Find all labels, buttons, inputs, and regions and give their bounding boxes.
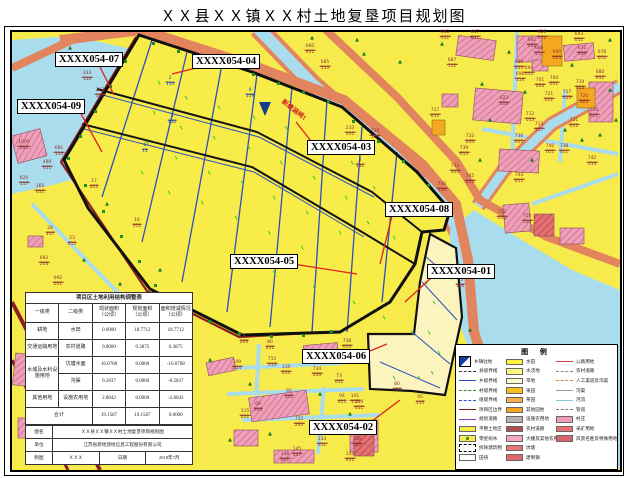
legend-label: 水浇地 [526, 368, 540, 374]
tree-icon: ▲ [158, 267, 162, 273]
sig-value: 2018年7月 [146, 452, 193, 465]
legend-symbol-sw-icon [459, 426, 476, 433]
legend-symbol-swd-icon [459, 435, 476, 442]
legend-label: 乡级界线 [479, 378, 497, 384]
vegetation-mark [212, 136, 215, 140]
vegetation-mark [234, 216, 237, 220]
sig-value: ＸＸ县ＸＸ镇ＸＸ村土地复垦项目规划图 [53, 426, 193, 439]
parcel-code: 115011 [240, 410, 251, 420]
vegetation-mark [184, 96, 187, 100]
legend-symbol-sw-icon [556, 416, 573, 423]
legend-item: 乡级界线 [459, 376, 506, 386]
tree-icon: ▲ [228, 437, 232, 443]
plot-label: XXXX054-03 [307, 140, 375, 155]
parcel-code: 678011 [597, 51, 608, 61]
legend-symbol-sw-icon [506, 387, 523, 394]
plot-label: XXXX054-01 [427, 264, 495, 279]
boundary-marker [402, 160, 405, 163]
parcel-code: 687112 [447, 59, 458, 69]
table-cell: 0.0000 [126, 391, 159, 408]
parcel-code: 690023 [552, 51, 563, 61]
parcel-code: 736011 [514, 135, 525, 145]
tree-icon: ▲ [362, 51, 366, 57]
table-cell: 农村道路 [59, 340, 92, 357]
tree-icon: ▲ [480, 81, 484, 87]
table-cell: 2.8042 [92, 391, 125, 408]
parcel-code: 136203 [352, 438, 363, 448]
vegetation-mark [305, 211, 308, 215]
sig-label: 图名 [26, 426, 53, 439]
boundary-marker [377, 140, 380, 143]
parcel-code: 23011 [68, 237, 77, 247]
legend-item: 田块 [459, 453, 506, 463]
legend-symbol-dr0-icon [459, 444, 476, 452]
sig-label: 单位 [26, 439, 53, 452]
parcel-code: 80011 [266, 341, 275, 351]
column-header: 现状面积 （公顷） [92, 304, 125, 323]
legend-label: 风景名胜及特殊用地 [576, 436, 617, 442]
legend-item: 组级界线 [459, 395, 506, 405]
tree-icon: ▲ [68, 45, 72, 51]
boundary-marker [330, 330, 333, 333]
legend-symbol-sw-icon [506, 378, 523, 385]
tree-icon: ▲ [563, 127, 567, 133]
parcel-code: 685114 [320, 61, 331, 71]
legend-item: 平整土地区 [459, 424, 506, 434]
table-cell: 水域及水利设施用地 [26, 357, 59, 391]
legend-label: 茶园 [526, 397, 535, 403]
parcel-code: 233111 [345, 127, 356, 137]
parcel-code: 730114 [370, 130, 381, 140]
parcel-code: 643011 [574, 33, 585, 43]
legend-symbol-sw-icon [556, 435, 573, 442]
table-cell: -2.8042 [159, 391, 192, 408]
legend-label: 农村道路 [526, 426, 544, 432]
parcel-code: 717013 [562, 91, 573, 101]
vegetation-mark [392, 376, 395, 380]
parcel-code: 499011 [42, 161, 53, 171]
legend-item: 风景名胜及特殊用地 [556, 434, 614, 444]
column-header: 规划面积 （公顷） [126, 304, 159, 323]
parcel-code: 704011 [549, 77, 560, 87]
parcel-code: 732203 [465, 135, 476, 145]
tree-icon: ▲ [268, 431, 272, 437]
plot-label: XXXX054-06 [302, 349, 370, 364]
landuse-table-wrap: 项目区土地利用结构调整表一级类二级类现状面积 （公顷）规划面积 （公顷）面积增减… [25, 292, 193, 465]
vegetation-mark [217, 106, 220, 110]
vegetation-mark [157, 81, 160, 85]
parcel-code: 66203 [254, 403, 263, 413]
plot-label: XXXX054-09 [17, 99, 85, 114]
legend-label: 人工渠道及沟渠 [576, 378, 608, 384]
legend-symbol-sw-icon [459, 454, 476, 461]
parcel-code: 745011 [465, 175, 476, 185]
boundary-marker [270, 335, 273, 338]
parcel-code: 692011 [53, 277, 64, 287]
parcel-code: 740114 [437, 183, 448, 193]
legend-symbol-seat-icon [459, 356, 471, 367]
legend-item: 大棚及其他农用地 [506, 434, 556, 444]
legend-column-lines: 公路用地农村道路人工渠道及沟渠沟渠河流管道村庄采矿用地风景名胜及特殊用地 [556, 357, 614, 463]
parcel-code: 722203 [294, 418, 305, 428]
parcel-code: 142011 [345, 453, 356, 463]
legend-symbol-lns-icon [556, 400, 573, 401]
parcel-code: 611 [142, 144, 148, 154]
legend-symbol-lnx-icon [556, 380, 573, 381]
parcel-code: 734203 [312, 368, 323, 378]
boundary-marker [352, 120, 355, 123]
vegetation-mark [267, 231, 270, 235]
parcel-code: 145117 [292, 448, 303, 458]
legend-symbol-sw-icon [556, 426, 573, 433]
tree-icon: ▲ [608, 87, 612, 93]
boundary-marker [238, 332, 241, 335]
legend-label: 沟渠 [576, 388, 585, 394]
column-header: 一级类 [26, 304, 59, 323]
legend-item: 农村道路 [506, 424, 556, 434]
parcel-code: 698114 [515, 73, 526, 83]
sig-label: 日期 [99, 452, 146, 465]
parcel-code: 119013 [281, 366, 292, 376]
parcel-code: 95115 [416, 396, 425, 406]
tree-icon: ▲ [355, 37, 359, 43]
parcel-code: 17011 [90, 180, 99, 190]
vegetation-mark [140, 171, 143, 175]
parcel-code: 719013 [575, 81, 586, 91]
parcel-code: 660011 [305, 45, 316, 55]
boundary-marker [154, 284, 157, 287]
vegetation-mark [272, 271, 275, 275]
table-cell: 0.2837 [92, 374, 125, 391]
vegetation-mark [372, 186, 375, 190]
legend-symbol-lns-icon [556, 361, 573, 362]
legend-label: 旱地 [526, 378, 535, 384]
parcel-code: 731011 [569, 119, 580, 129]
boundary-marker [84, 184, 87, 187]
parcel-code: 742114 [587, 157, 598, 167]
vegetation-mark [240, 181, 243, 185]
tree-icon: ▲ [608, 37, 612, 43]
parcel-code: 2114 [166, 77, 175, 87]
legend-symbol-sw-icon [506, 368, 523, 375]
tree-icon: ▲ [488, 117, 492, 123]
tree-icon: ▲ [248, 381, 252, 387]
legend-item: 零星树木 [459, 434, 506, 444]
vegetation-mark [410, 331, 413, 335]
table-cell: 0.0000 [126, 357, 159, 374]
planning-map-page: ＸＸ县ＸＸ镇ＸＸ村土地复垦项目规划图 [0, 0, 627, 478]
parcel-code: 689013 [514, 61, 525, 71]
boundary-marker [302, 91, 305, 94]
boundary-marker [252, 73, 255, 76]
vegetation-mark [167, 191, 170, 195]
parcel-code: 743203 [450, 165, 461, 175]
legend-column-boundaries: 乡镇驻地县级界线乡级界线村级界线组级界线项目区边界规划道路平整土地区零星树木拆除… [459, 357, 506, 463]
vegetation-mark [432, 301, 435, 305]
tree-icon: ▲ [478, 157, 482, 163]
parcel-code: 727011 [430, 109, 441, 119]
legend-symbol-lnd-icon [459, 390, 476, 391]
tree-icon: ▲ [310, 35, 314, 41]
legend-item: 坑塘 [506, 443, 556, 453]
legend-symbol-sw-icon [506, 397, 523, 404]
legend-symbol-sw-icon [506, 454, 523, 461]
vegetation-mark [284, 126, 287, 130]
legend-label: 零星树木 [479, 436, 497, 442]
tree-icon: ▲ [105, 201, 109, 207]
legend-item: 管道 [556, 405, 614, 415]
parcel-code: 753114 [522, 215, 533, 225]
parcel-code: 645011 [440, 31, 451, 41]
table-cell: 0.3875 [126, 340, 159, 357]
plot-label: XXXX054-08 [385, 202, 453, 217]
boundary-marker [67, 157, 70, 160]
legend: 图 例 乡镇驻地县级界线乡级界线村级界线组级界线项目区边界规划道路平整土地区零星… [455, 344, 618, 470]
legend-symbol-sw-icon [506, 416, 523, 423]
vegetation-mark [207, 171, 210, 175]
table-cell: 耕地 [26, 323, 59, 340]
legend-item: 项目区边界 [459, 405, 506, 415]
legend-item: 建制镇 [506, 453, 556, 463]
parcel-code: 738011 [559, 145, 570, 155]
table-cell: 其他用地 [26, 391, 59, 408]
table-cell: 0.3875 [159, 340, 192, 357]
legend-label: 坑塘 [526, 445, 535, 451]
legend-label: 平整土地区 [479, 426, 502, 432]
legend-item: 果园 [506, 386, 556, 396]
legend-label: 田块 [479, 455, 488, 461]
parcel-code: 1009203 [17, 141, 30, 151]
vegetation-mark [430, 371, 433, 375]
parcel-code: 28117 [46, 227, 55, 237]
boundary-marker [277, 82, 280, 85]
tree-icon: ▲ [318, 391, 322, 397]
legend-label: 农村道路 [576, 368, 594, 374]
landuse-table: 项目区土地利用结构调整表一级类二级类现状面积 （公顷）规划面积 （公顷）面积增减… [25, 292, 193, 425]
legend-symbol-lns-icon [459, 419, 476, 420]
total-label: 合计 [26, 408, 93, 425]
parcel-code: 628011 [537, 31, 548, 41]
vegetation-mark [174, 156, 177, 160]
tree-icon: ▲ [523, 89, 527, 95]
sig-value: 江苏省新地测绘信息工程股份有限公司 [53, 439, 193, 452]
legend-title: 图 例 [459, 347, 614, 357]
parcel-code: 647011 [470, 31, 481, 41]
vegetation-mark [300, 246, 303, 250]
legend-label: 水田 [526, 359, 535, 365]
signature-table: 图名ＸＸ县ＸＸ镇ＸＸ村土地复垦项目规划图单位江苏省新地测绘信息工程股份有限公司制… [25, 425, 193, 465]
column-header: 二级类 [59, 304, 92, 323]
legend-item: 河流 [556, 395, 614, 405]
tree-icon: ▲ [82, 257, 86, 263]
vegetation-mark [437, 351, 440, 355]
parcel-code: 165011 [35, 185, 46, 195]
tree-icon: ▲ [440, 41, 444, 47]
legend-label: 乡镇驻地 [474, 359, 492, 365]
vegetation-mark [352, 301, 355, 305]
legend-label: 拆除建筑物 [479, 445, 502, 451]
table-cell: 坑塘水面 [59, 357, 92, 374]
parcel-code: 744011 [514, 174, 525, 184]
vegetation-mark [344, 196, 347, 200]
parcel-code: 109114 [232, 361, 243, 371]
vegetation-mark [350, 161, 353, 165]
parcel-code: 3132 [168, 115, 177, 125]
parcel-code: 732011 [497, 211, 508, 221]
tree-icon: ▲ [118, 281, 122, 287]
vegetation-mark [279, 161, 282, 165]
legend-label: 项目区边界 [479, 407, 502, 413]
legend-item: 茶园 [506, 395, 556, 405]
legend-symbol-lns-icon [459, 409, 476, 410]
boundary-marker [124, 60, 127, 63]
parcel-code: 94011 [338, 395, 347, 405]
legend-symbol-sw-icon [506, 435, 523, 442]
parcel-code: 680011 [595, 71, 606, 81]
parcel-code: 92011 [285, 390, 294, 400]
table-cell: 交通运输用地 [26, 340, 59, 357]
legend-label: 县级界线 [479, 368, 497, 374]
table-title: 项目区土地利用结构调整表 [26, 293, 193, 304]
boundary-marker [120, 235, 123, 238]
parcel-code: 682203 [39, 257, 50, 267]
legend-item: 其他园地 [506, 405, 556, 415]
legend-column-landuse: 水田水浇地旱地果园茶园其他园地设施农用地农村道路大棚及其他农用地坑塘建制镇 [506, 357, 556, 463]
legend-item: 沟渠 [556, 386, 614, 396]
legend-label: 建制镇 [526, 455, 540, 461]
legend-symbol-lnd-icon [556, 371, 573, 372]
boundary-marker [427, 184, 430, 187]
legend-label: 村级界线 [479, 388, 497, 394]
parcel-code: 720023 [579, 95, 590, 105]
vegetation-mark [152, 111, 155, 115]
boundary-marker [302, 334, 305, 337]
vegetation-mark [272, 196, 275, 200]
parcel-code: 203104 [95, 89, 106, 99]
plot-label: XXXX054-02 [309, 420, 377, 435]
boundary-marker [79, 135, 82, 138]
legend-symbol-lnd-icon [459, 400, 476, 401]
parcel-code: 721011 [544, 93, 555, 103]
tree-icon: ▲ [598, 132, 602, 138]
parcel-code: 672203 [577, 47, 588, 57]
legend-label: 果园 [526, 388, 535, 394]
boundary-marker [94, 110, 97, 113]
tree-icon: ▲ [468, 327, 472, 333]
parcel-code: 15116 [456, 279, 465, 289]
legend-label: 采矿用地 [576, 426, 594, 432]
table-cell: 18.7712 [126, 323, 159, 340]
legend-item: 水浇地 [506, 367, 556, 377]
vegetation-mark [424, 281, 427, 285]
plot-label: XXXX054-04 [192, 54, 260, 69]
boundary-marker [152, 42, 155, 45]
parcel-code: 712013 [525, 113, 536, 123]
legend-symbol-sw-icon [506, 407, 523, 414]
page-title: ＸＸ县ＸＸ镇ＸＸ村土地复垦项目规划图 [0, 5, 627, 26]
legend-label: 其他园地 [526, 407, 544, 413]
plot-label: XXXX054-05 [230, 254, 298, 269]
legend-label: 公路用地 [576, 359, 594, 365]
tree-icon: ▲ [614, 117, 618, 123]
parcel-code: 701203 [535, 79, 546, 89]
sig-label: 制图 [26, 452, 53, 465]
vegetation-mark [427, 331, 430, 335]
tree-icon: ▲ [348, 411, 352, 417]
parcel-code: 16011 [133, 219, 142, 229]
tree-icon: ▲ [580, 137, 584, 143]
legend-symbol-lns-icon [556, 390, 573, 391]
legend-item: 乡镇驻地 [459, 357, 506, 367]
table-cell: 0.0000 [92, 323, 125, 340]
boundary-marker [177, 50, 180, 53]
legend-item: 村级界线 [459, 386, 506, 396]
parcel-code: 333114 [82, 72, 93, 82]
sig-value: ＸＸＸ [53, 452, 100, 465]
tree-icon: ▲ [507, 49, 511, 55]
vegetation-mark [338, 231, 341, 235]
legend-label: 规划道路 [479, 416, 497, 422]
boundary-marker [102, 210, 105, 213]
tree-icon: ▲ [570, 62, 574, 68]
vegetation-mark [200, 201, 203, 205]
legend-item: 水田 [506, 357, 556, 367]
table-cell: -16.0708 [159, 357, 192, 374]
boundary-marker [208, 320, 211, 323]
parcel-code: 139011 [354, 401, 365, 411]
vegetation-mark [312, 176, 315, 180]
parcel-code: 666117 [534, 47, 545, 57]
tree-icon: ▲ [208, 357, 212, 363]
legend-label: 村庄 [576, 416, 585, 422]
legend-symbol-sw-icon [506, 359, 523, 366]
legend-item: 村庄 [556, 415, 614, 425]
parcel-code: 681114 [54, 147, 65, 157]
parcel-code: 9119 [246, 89, 255, 99]
vegetation-mark [247, 146, 250, 150]
table-cell: 0.0000 [92, 340, 125, 357]
boundary-marker [109, 85, 112, 88]
vegetation-mark [417, 376, 420, 380]
parcel-code: 715113 [267, 358, 278, 368]
legend-item: 设施农用地 [506, 415, 556, 425]
table-cell: -0.2837 [159, 374, 192, 391]
tree-icon: ▲ [530, 157, 534, 163]
legend-item: 规划道路 [459, 415, 506, 425]
vegetation-mark [312, 286, 315, 290]
table-cell: 设施农用地 [59, 391, 92, 408]
parcel-code: 73011 [335, 375, 344, 385]
vegetation-mark [252, 116, 255, 120]
vegetation-mark [382, 316, 385, 320]
legend-label: 河流 [576, 397, 585, 403]
table-cell: 18.7712 [159, 323, 192, 340]
legend-label: 设施农用地 [526, 416, 549, 422]
legend-item: 人工渠道及沟渠 [556, 376, 614, 386]
legend-item: 旱地 [506, 376, 556, 386]
table-cell: 沟渠 [59, 374, 92, 391]
parcel-code: 8203 [240, 335, 249, 345]
parcel-code: 623203 [499, 97, 510, 107]
parcel-code: 713117 [534, 123, 545, 133]
legend-symbol-lnd-icon [556, 409, 573, 410]
legend-symbol-sw-icon [506, 426, 523, 433]
parcel-code: 133011 [317, 438, 328, 448]
legend-label: 组级界线 [479, 397, 497, 403]
legend-label: 管道 [576, 407, 585, 413]
legend-item: 县级界线 [459, 367, 506, 377]
legend-item: 公路用地 [556, 357, 614, 367]
